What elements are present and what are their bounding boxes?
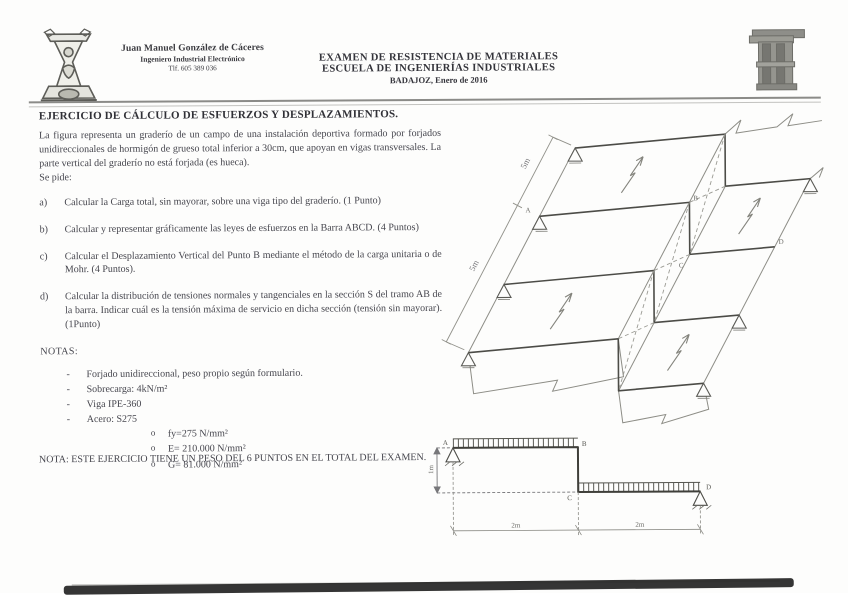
exercise-intro: La figura representa un graderío de un c… [39, 127, 441, 171]
notes-title: NOTAS: [40, 343, 442, 356]
point-label-a-3d: A [525, 206, 530, 214]
break-line-top [725, 114, 822, 135]
column-stamp-logo [746, 24, 810, 94]
dimension-line-3d [445, 137, 554, 342]
question-list: a) Calcular la Carga total, sin mayorar,… [39, 194, 442, 332]
author-block: Juan Manuel González de Cáceres Ingenier… [102, 43, 282, 73]
exercise-title: EJERCICIO DE CÁLCULO DE ESFUERZOS Y DESP… [39, 108, 441, 122]
udl-hatch-ab [453, 443, 578, 444]
stepped-beam-1 [575, 134, 810, 187]
question-c-text: Calcular el Desplazamiento Vertical del … [65, 247, 442, 277]
support-triangle [697, 383, 711, 396]
step-lower-fold-line [617, 186, 726, 391]
point-label-c-3d: C [679, 261, 684, 269]
slab-left-edge [467, 148, 576, 353]
stepped-beam-3 [504, 270, 739, 323]
support-ground-hatch [461, 162, 817, 400]
circle-marker: o [151, 426, 158, 442]
dim-label-span2: 2m [635, 521, 645, 529]
question-b-label: b) [40, 223, 54, 237]
note-text: Acero: S275 [87, 411, 137, 426]
question-a: a) Calcular la Carga total, sin mayorar,… [39, 194, 441, 210]
dash-marker: - [66, 367, 72, 382]
point-label-c: C [567, 494, 572, 502]
udl-top-line-cd [578, 482, 700, 483]
support-triangle [803, 179, 817, 192]
steel-property-text: fy=275 N/mm² [168, 426, 228, 442]
question-b-text: Calcular y representar gráficamente las … [65, 221, 442, 237]
point-label-b-3d: B [693, 194, 698, 202]
weight-note: NOTA: ESTE EJERCICIO TIENE UN PESO DEL 6… [39, 451, 429, 468]
hidden-beam-line [618, 323, 654, 339]
span-extension-lines [453, 460, 700, 536]
author-name: Juan Manuel González de Cáceres [102, 43, 282, 54]
grandstand-isometric-figure: 5m 5m A B C D [425, 100, 831, 444]
note-text: Viga IPE-360 [87, 396, 142, 411]
point-label-a: A [443, 439, 448, 447]
support-triangle [568, 148, 582, 161]
stepped-beam-2 [539, 202, 774, 255]
note-text: Forjado unidireccional, peso propio segú… [86, 365, 302, 381]
height-extension-lines [437, 447, 575, 493]
dimension-extension [445, 137, 572, 350]
beam-abcd-line [453, 446, 700, 493]
scanned-exam-page: Juan Manuel González de Cáceres Ingenier… [0, 0, 848, 593]
dash-marker: - [67, 397, 73, 412]
slab-right-edge [702, 179, 811, 384]
scan-bottom-edge [64, 578, 794, 595]
slab-span-arrow [667, 334, 689, 370]
dim-label-span1: 2m [511, 521, 521, 529]
stepped-beam-4 [468, 338, 703, 391]
udl-hatch-cd [578, 487, 700, 488]
note-text: Sobrecarga: 4kN/m² [87, 381, 168, 396]
question-d-text: Calcular la distribución de tensiones no… [65, 288, 442, 332]
slab-span-arrow [621, 157, 643, 193]
exam-title-line2: ESCUELA DE INGENIERÍAS INDUSTRIALES [269, 62, 609, 75]
support-a [446, 448, 460, 462]
support-d [693, 491, 707, 505]
dash-marker: - [67, 412, 73, 427]
slab-span-arrow [738, 198, 760, 234]
question-b: b) Calcular y representar gráficamente l… [40, 221, 442, 237]
engineer-crest-logo [32, 28, 104, 104]
beam-abcd-diagram: 1m 2m 2m A B C D [425, 434, 720, 550]
question-c-label: c) [40, 250, 54, 278]
question-d-label: d) [40, 290, 54, 331]
support-triangle [533, 216, 547, 229]
steel-property: o fy=275 N/mm² [151, 424, 443, 441]
hidden-beam-line [653, 202, 690, 322]
exam-title-block: EXAMEN DE RESISTENCIA DE MATERIALES ESCU… [269, 51, 609, 86]
dash-marker: - [67, 382, 73, 397]
question-d: d) Calcular la distribución de tensiones… [40, 288, 442, 332]
se-pide-label: Se pide: [39, 169, 441, 185]
slab-span-arrow [550, 293, 572, 329]
author-role: Ingeniero Industrial Electrónico [103, 54, 283, 64]
dim-label-5m-upper: 5m [518, 156, 532, 171]
support-triangle [732, 315, 746, 328]
point-label-b: B [582, 440, 587, 448]
exam-title-line3: BADAJOZ, Enero de 2016 [269, 74, 609, 86]
exercise-text-column: EJERCICIO DE CÁLCULO DE ESFUERZOS Y DESP… [39, 108, 443, 474]
question-a-text: Calcular la Carga total, sin mayorar, so… [64, 194, 441, 210]
scan-content: Juan Manuel González de Cáceres Ingenier… [0, 0, 848, 596]
support-triangle [461, 353, 475, 366]
break-line-bottom-left [468, 339, 623, 394]
point-label-d-3d: D [779, 238, 784, 246]
udl-top-line-ab [453, 438, 578, 439]
dim-label-5m-lower: 5m [467, 258, 481, 273]
question-c: c) Calcular el Desplazamiento Vertical d… [40, 247, 442, 277]
hidden-beam-line [654, 254, 690, 270]
dim-label-1m: 1m [427, 464, 435, 474]
author-phone: Tlf. 605 389 036 [103, 64, 283, 73]
support-triangle [497, 284, 511, 297]
question-a-label: a) [39, 196, 53, 210]
break-line-right [810, 168, 823, 179]
step-upper-fold-line [617, 134, 726, 339]
point-label-d: D [706, 483, 711, 491]
span-dim-line [453, 529, 700, 531]
